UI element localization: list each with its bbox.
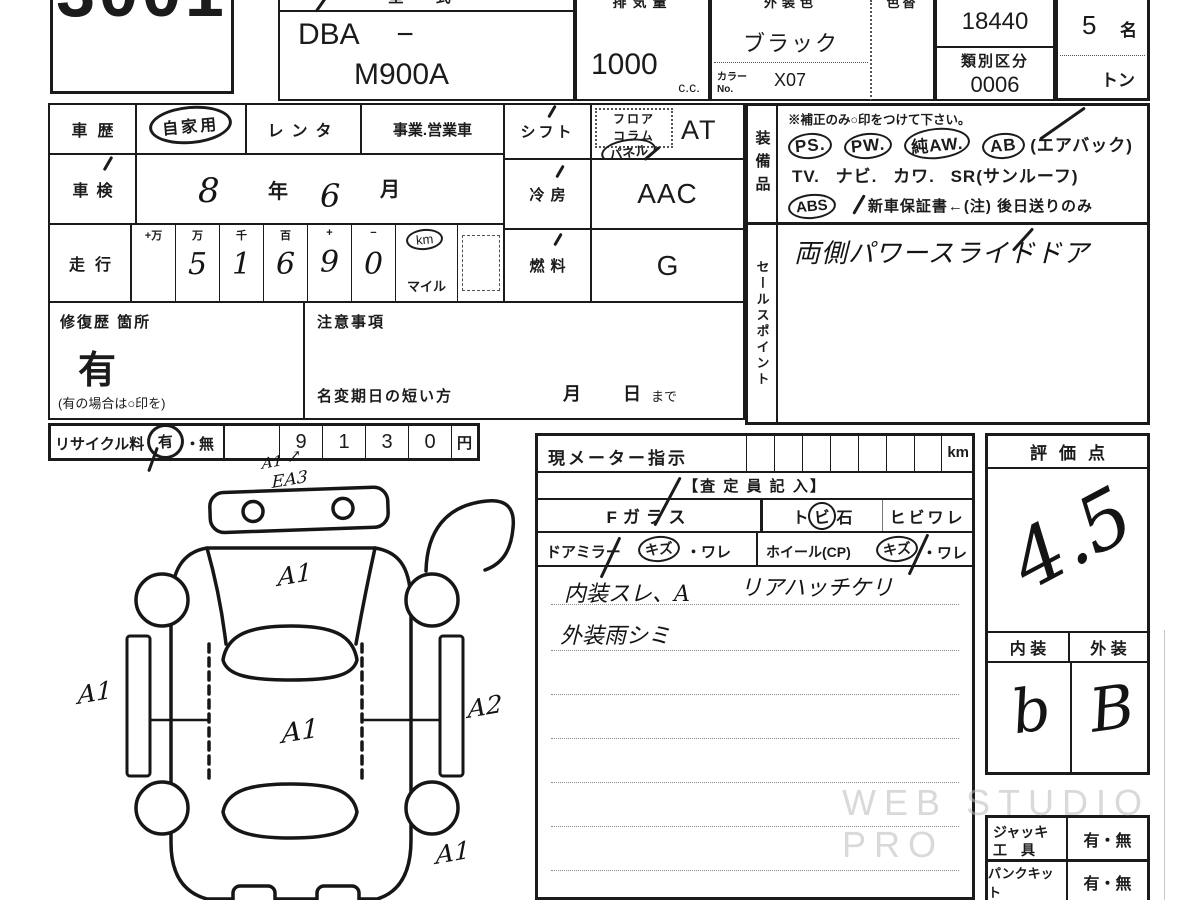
- class-number: 0006: [937, 72, 1053, 98]
- cooling-value: AAC: [637, 178, 698, 210]
- front-glass-label: Fガラス: [606, 503, 691, 528]
- type-approval-number: 18440: [937, 8, 1053, 36]
- type-approval-box: 18440 類別区分 0006: [935, 0, 1055, 101]
- load-unit: トン: [1101, 66, 1135, 91]
- hibiware-label: ヒビワレ: [889, 504, 965, 528]
- rename-day: 日: [623, 380, 641, 406]
- repair-label: 修復歴 箇所: [60, 311, 151, 332]
- exterior-grade: B: [1085, 671, 1138, 746]
- equip-pw: PW.: [843, 131, 893, 161]
- score-label: 評価点: [1030, 439, 1117, 464]
- rename-deadline-label: 名変期日の短い方: [317, 385, 453, 406]
- equip-abs: ABS: [787, 192, 837, 221]
- car-top-view-drawing: [55, 448, 525, 900]
- assessor-note-1b: リアハッチケリ: [740, 570, 893, 602]
- mileage-col-header: 千: [220, 227, 263, 243]
- mileage-digit: 0: [352, 247, 395, 282]
- history-rental: レンタ: [267, 117, 339, 141]
- mileage-col-header: −: [352, 227, 395, 239]
- equip-tv: TV.: [792, 167, 820, 186]
- month-suffix: 月: [380, 173, 400, 202]
- shaken-year: 8: [198, 171, 220, 211]
- lot-number: 3001: [53, 0, 231, 32]
- capacity-value: 5: [1082, 10, 1096, 41]
- mileage-unit-km: km: [405, 227, 444, 251]
- mileage-row: 走行 +万 万 5 千 1 百 6 + 9 − 0 km マイル: [48, 225, 505, 303]
- mileage-col-header: 百: [264, 227, 307, 243]
- displacement-unit: c.c.: [678, 79, 700, 95]
- equipment-note: ※補正のみ○印をつけて下さい。: [788, 109, 971, 128]
- mileage-label: 走行: [69, 251, 121, 275]
- shift-value: AT: [681, 115, 718, 146]
- rename-until: まで: [651, 386, 677, 405]
- score-panel: 評価点 4.5 内 装 外 装 b B: [985, 433, 1150, 775]
- puncture-value: 有・無: [1083, 870, 1131, 894]
- diagram-mark-center: A1: [282, 713, 319, 750]
- mileage-digit: 5: [176, 247, 219, 282]
- tobi-circled: ビ: [807, 500, 837, 530]
- equipment-box: 装備品 ※補正のみ○印をつけて下さい。 PS. PW. 純AW. AB (エアバ…: [745, 103, 1150, 225]
- equip-ab: AB: [981, 131, 1026, 161]
- cooling-row: 冷房 AAC: [505, 160, 745, 230]
- mileage-unit-mile: マイル: [396, 276, 457, 295]
- repair-note: (有の場合は○印を): [58, 393, 166, 412]
- equip-aw: 純AW.: [903, 125, 972, 162]
- caution-label: 注意事項: [317, 311, 385, 332]
- color-value: ブラック: [712, 26, 870, 58]
- model-code: M900A: [354, 58, 449, 92]
- equip-kawa: カワ.: [893, 167, 935, 186]
- sales-point-label: セールスポイント: [753, 260, 772, 388]
- caution-box: 注意事項 名変期日の短い方 月 日 まで: [305, 303, 745, 420]
- fuel-row: 燃料 G: [505, 230, 745, 303]
- wheel-kizu: キズ: [875, 534, 919, 564]
- diagram-mark-hood: A1: [278, 557, 312, 591]
- mileage-digit: 9: [308, 245, 351, 280]
- history-label: 車歴: [71, 117, 123, 141]
- mileage-col-header: +: [308, 227, 351, 239]
- shaken-label: 車検: [72, 177, 120, 201]
- puncture-kit-row: パンクキット 有・無: [985, 862, 1150, 900]
- mileage-col-header: 万: [176, 227, 219, 243]
- year-suffix: 年: [268, 175, 288, 204]
- equip-sr-paren: (サンルーフ): [976, 167, 1078, 186]
- model-code-box: 型 式 DBA − M900A: [278, 0, 575, 101]
- car-diagram: [55, 448, 525, 900]
- history-row: 車歴 自家用 レンタ 事業.営業車: [48, 103, 505, 155]
- color-box: 外装色 ブラック カラー No. X07: [710, 0, 870, 101]
- diagram-mark-left: A1: [78, 675, 112, 709]
- equip-ps: PS.: [787, 131, 834, 161]
- displacement-value: 1000: [591, 48, 658, 82]
- fuel-value: G: [657, 250, 679, 282]
- lot-number-box: 3001: [50, 0, 234, 94]
- rename-month: 月: [563, 380, 581, 406]
- wheel-ware: ・ワレ: [922, 542, 967, 563]
- interior-label: 内 装: [1010, 635, 1046, 659]
- history-private: 自家用: [148, 102, 234, 147]
- tobi-right: 石: [837, 504, 853, 528]
- exterior-label: 外 装: [1090, 635, 1126, 659]
- mirror-kizu: キズ: [637, 534, 681, 564]
- wheel-label: ホイール(CP): [766, 542, 851, 562]
- cooling-label: 冷房: [529, 184, 571, 205]
- diagram-mark-right: A2: [468, 689, 502, 723]
- interior-grade: b: [1007, 674, 1055, 749]
- sales-point-box: セールスポイント 両側パワースライドドア: [745, 225, 1150, 425]
- watermark: WEB STUDIO PRO: [842, 782, 1200, 866]
- displacement-label: 排気量: [577, 0, 708, 12]
- score-value: 4.5: [996, 470, 1148, 608]
- scan-edge-artifact: [1164, 630, 1165, 900]
- displacement-box: 排気量 1000 c.c.: [575, 0, 710, 101]
- mileage-digit: 1: [220, 247, 263, 282]
- puncture-label: パンクキット: [988, 863, 1066, 900]
- equipment-label: 装備品: [752, 130, 773, 199]
- color-label: 外装色: [712, 0, 870, 11]
- shift-label: シフト: [520, 121, 574, 142]
- shaken-row: 車検 8 年 6 月: [48, 155, 505, 225]
- model-prefix: DBA −: [298, 18, 414, 52]
- history-business: 事業.営業車: [393, 119, 472, 140]
- equip-navi: ナビ.: [836, 167, 878, 186]
- color-change-box: 色替: [870, 0, 935, 101]
- color-no-value: X07: [774, 70, 806, 91]
- shaken-month: 6: [320, 177, 340, 215]
- capacity-unit: 名: [1120, 16, 1137, 41]
- auction-sheet: 3001 型 式 DBA − M900A 排気量 1000 c.c. 外装色 ブ…: [0, 0, 1200, 900]
- equip-ab-paren: (エアバック): [1030, 136, 1133, 155]
- assessor-note-2: 外装雨シミ: [560, 618, 670, 650]
- mileage-spare-box: [462, 235, 500, 291]
- capacity-box: 5 名 トン: [1055, 0, 1150, 101]
- class-label: 類別区分: [937, 50, 1053, 71]
- meter-unit: km: [947, 444, 969, 461]
- mileage-digit: 6: [264, 247, 307, 282]
- diagram-arrow-mark: ↗: [287, 446, 301, 468]
- diagram-mark-bottom: A1: [436, 835, 470, 869]
- equip-warranty: 新車保証書←(注) 後日送りのみ: [868, 198, 1093, 215]
- shift-row: シフト フロア コラム パネル AT: [505, 103, 745, 160]
- mileage-col-header: +万: [132, 227, 175, 243]
- color-no-label-1: カラー: [717, 68, 747, 83]
- meter-label: 現メーター指示: [548, 444, 688, 469]
- sales-point-value: 両側パワースライドドア: [794, 233, 1090, 270]
- assessor-title: 【査 定 員 記 入】: [683, 475, 827, 496]
- color-no-label-2: No.: [717, 84, 733, 95]
- fuel-label: 燃料: [529, 255, 571, 276]
- equip-sr: SR: [951, 167, 977, 186]
- mirror-ware: ・ワレ: [686, 541, 731, 562]
- repair-value: 有: [78, 339, 116, 394]
- diagram-mark-top: A1: [262, 451, 283, 472]
- color-change-label: 色替: [872, 0, 933, 11]
- tobi-left: ト: [792, 504, 808, 528]
- repair-box: 修復歴 箇所 有 (有の場合は○印を): [48, 303, 305, 420]
- shift-option-floor: フロア: [597, 110, 671, 127]
